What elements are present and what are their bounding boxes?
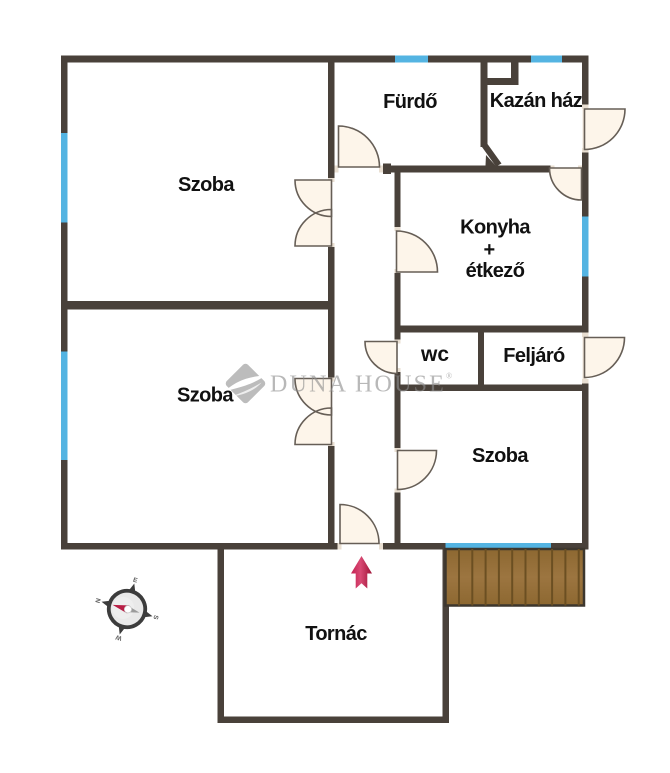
svg-text:wc: wc	[420, 343, 449, 366]
svg-text:Szoba: Szoba	[177, 385, 234, 407]
svg-text:Kazán ház: Kazán ház	[490, 90, 583, 112]
svg-text:Szoba: Szoba	[178, 174, 235, 196]
svg-text:+: +	[483, 239, 494, 261]
svg-text:Feljáró: Feljáró	[503, 345, 565, 367]
svg-text:DUNA HOUSE: DUNA HOUSE	[270, 372, 446, 398]
svg-text:®: ®	[446, 372, 452, 381]
svg-text:Tornác: Tornác	[305, 623, 367, 645]
svg-text:Szoba: Szoba	[472, 445, 529, 467]
svg-text:Fürdő: Fürdő	[383, 91, 437, 113]
svg-text:Konyha: Konyha	[460, 217, 531, 239]
svg-text:étkező: étkező	[466, 260, 525, 282]
